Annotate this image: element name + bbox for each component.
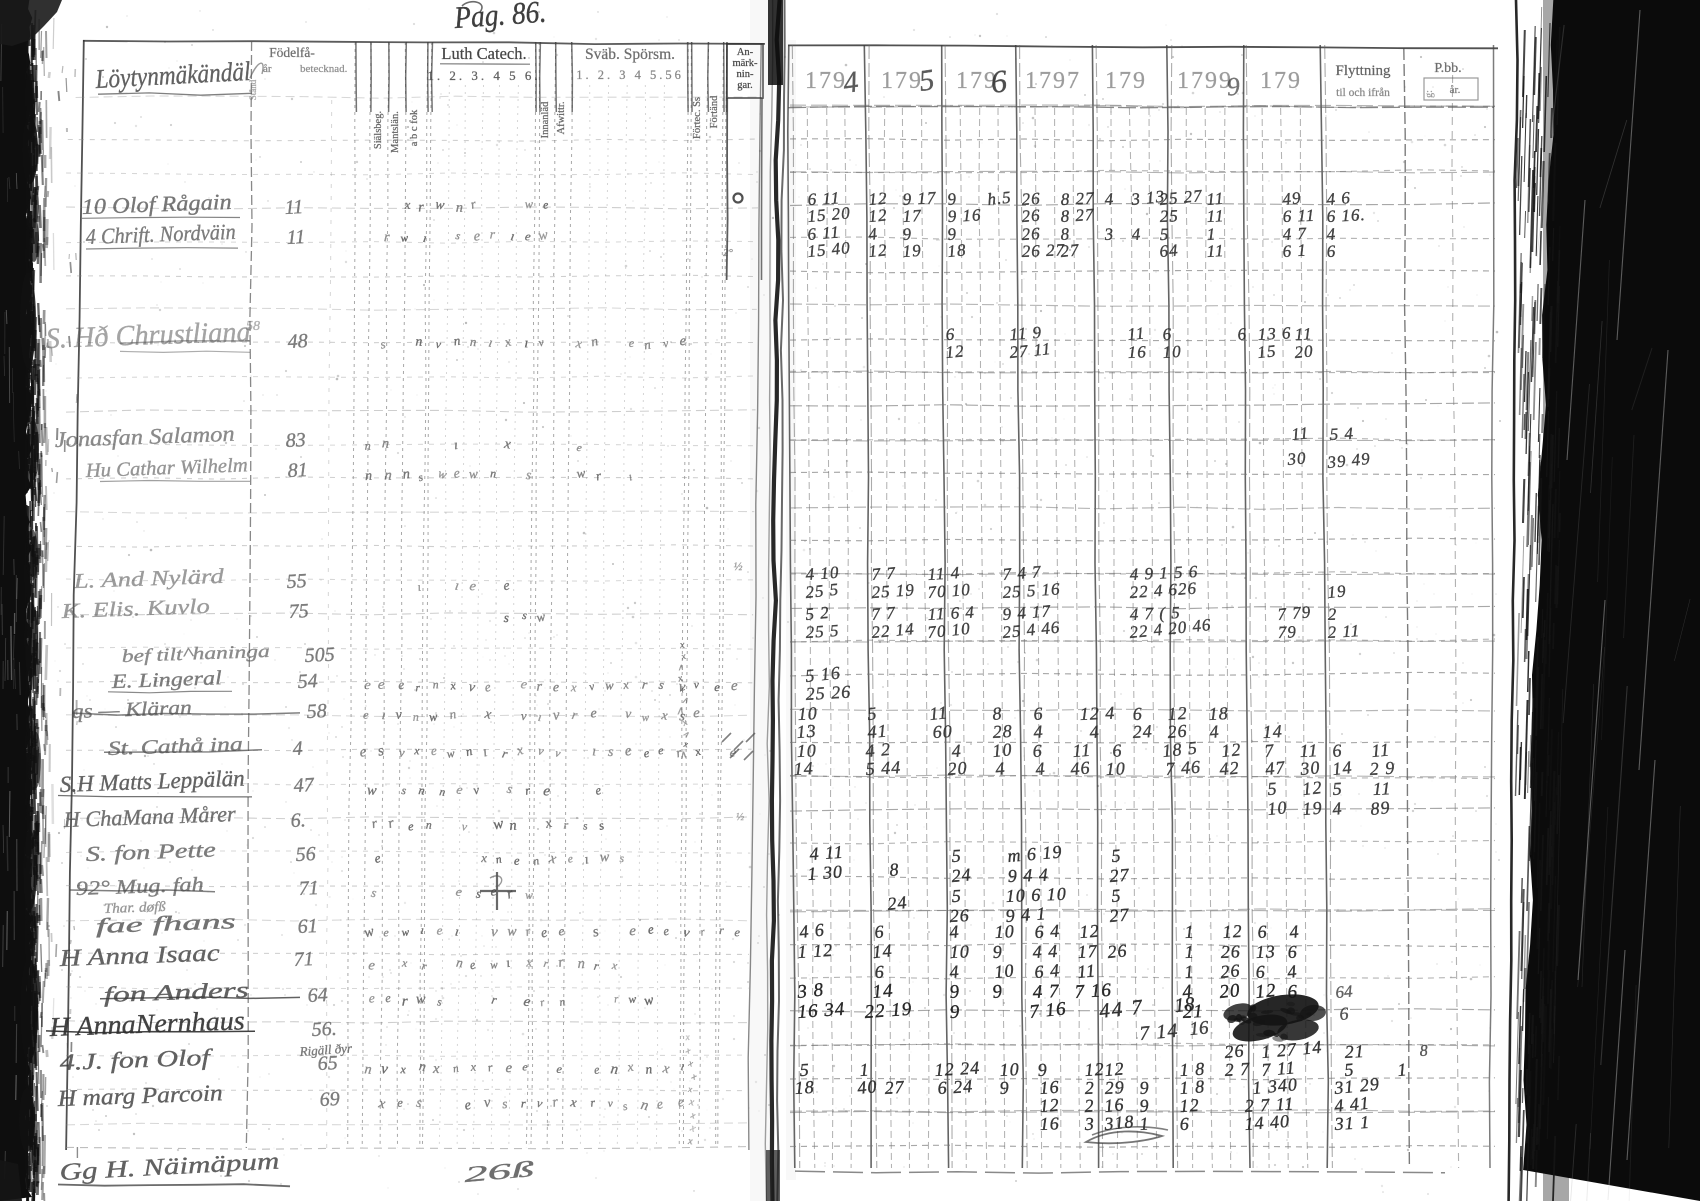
svg-text:6: 6 — [1287, 942, 1298, 962]
svg-text:6: 6 — [945, 325, 955, 344]
svg-text:9: 9 — [999, 1077, 1010, 1098]
svg-text:2 11: 2 11 — [1327, 621, 1361, 642]
svg-text:w: w — [507, 923, 517, 938]
svg-text:16: 16 — [1039, 1113, 1060, 1134]
svg-text:14 40: 14 40 — [1244, 1111, 1291, 1134]
svg-text:55: 55 — [286, 570, 307, 593]
svg-text:89: 89 — [1369, 797, 1391, 819]
svg-text:16: 16 — [1189, 1017, 1210, 1040]
svg-text:½: ½ — [736, 811, 744, 823]
svg-text:∧: ∧ — [675, 705, 684, 718]
svg-text:P.bb.: P.bb. — [1434, 61, 1461, 76]
svg-text:r: r — [536, 679, 542, 695]
svg-text:9 4 4: 9 4 4 — [1007, 864, 1049, 886]
svg-text:64: 64 — [1335, 982, 1354, 1002]
svg-text:Innanläd: Innanläd — [540, 101, 551, 138]
svg-text:10: 10 — [1266, 797, 1288, 819]
svg-text:1 12: 1 12 — [797, 940, 834, 962]
svg-text:25 5: 25 5 — [805, 621, 840, 642]
svg-text:56.: 56. — [311, 1018, 337, 1041]
svg-text:n: n — [470, 335, 477, 349]
svg-text:4: 4 — [292, 737, 303, 759]
svg-text:70 10: 70 10 — [927, 580, 972, 602]
svg-text:4: 4 — [1089, 721, 1100, 742]
svg-text:12: 12 — [945, 341, 966, 362]
svg-text:12: 12 — [868, 240, 889, 261]
svg-text:fon Anders: fon Anders — [103, 977, 249, 1007]
svg-text:n: n — [509, 817, 517, 834]
svg-text:8 27: 8 27 — [1060, 205, 1095, 226]
svg-text:8: 8 — [1419, 1042, 1429, 1060]
svg-text:13: 13 — [796, 721, 817, 742]
svg-text:h.5: h.5 — [986, 188, 1012, 209]
svg-text:10: 10 — [999, 1059, 1020, 1080]
svg-text:16 34: 16 34 — [797, 999, 846, 1023]
svg-text:27: 27 — [1060, 240, 1081, 261]
svg-text:n: n — [384, 468, 392, 484]
svg-text:58: 58 — [246, 319, 260, 334]
svg-text:14: 14 — [872, 940, 894, 962]
svg-text:179: 179 — [1105, 68, 1147, 94]
svg-text:n: n — [490, 466, 497, 480]
svg-text:9: 9 — [992, 942, 1003, 962]
svg-text:5: 5 — [951, 886, 962, 906]
svg-text:e: e — [731, 678, 738, 694]
svg-text:1. 2. 3. 4 5 6.: 1. 2. 3. 4 5 6. — [427, 68, 540, 83]
svg-text:61: 61 — [297, 915, 318, 938]
svg-text:ı: ı — [592, 743, 596, 759]
svg-text:betecknad.: betecknad. — [300, 63, 348, 75]
svg-text:14: 14 — [1262, 721, 1283, 742]
svg-text:5: 5 — [1110, 885, 1122, 906]
svg-text:e: e — [680, 333, 687, 349]
svg-text:11: 11 — [1127, 323, 1146, 344]
svg-text:6: 6 — [1162, 324, 1173, 344]
svg-text:6 4: 6 4 — [1034, 921, 1061, 942]
svg-text:9 16: 9 16 — [947, 205, 982, 226]
svg-text:12: 12 — [868, 205, 889, 226]
svg-text:8: 8 — [888, 859, 900, 880]
svg-text:18: 18 — [1174, 993, 1196, 1017]
svg-text:3: 3 — [1083, 1114, 1095, 1134]
svg-text:58: 58 — [306, 700, 327, 723]
svg-text:7 14: 7 14 — [1139, 1020, 1180, 1045]
svg-text:17: 17 — [902, 206, 923, 226]
svg-text:19: 19 — [1327, 581, 1348, 602]
svg-text:5: 5 — [1111, 845, 1123, 866]
svg-text:år: år — [263, 63, 272, 75]
svg-text:13: 13 — [1255, 941, 1276, 962]
svg-text:5: 5 — [1332, 778, 1343, 799]
svg-text:15 40: 15 40 — [807, 238, 852, 261]
svg-text:26: 26 — [1220, 941, 1241, 962]
svg-text:2 7: 2 7 — [1224, 1059, 1251, 1080]
svg-text:11: 11 — [1206, 241, 1225, 261]
svg-text:4: 4 — [995, 758, 1007, 779]
svg-text:Förtec. Ss: Förtec. Ss — [692, 97, 703, 139]
svg-text:w: w — [469, 466, 478, 481]
svg-text:e: e — [590, 705, 596, 720]
svg-text:Afwittr.: Afwittr. — [556, 102, 567, 135]
svg-text:n: n — [415, 334, 423, 349]
svg-text:9: 9 — [991, 981, 1003, 1003]
svg-text:Förtänd: Förtänd — [709, 95, 720, 128]
svg-text:64: 64 — [307, 984, 328, 1007]
svg-text:30: 30 — [1298, 757, 1321, 779]
svg-text:e: e — [628, 336, 634, 350]
svg-text:18: 18 — [794, 1077, 815, 1098]
svg-text:e: e — [514, 854, 520, 868]
svg-text:9: 9 — [1226, 72, 1241, 102]
svg-text:10 Olof Rågain: 10 Olof Rågain — [81, 189, 232, 219]
svg-text:1797: 1797 — [1025, 68, 1081, 94]
svg-text:1. 2. 3 4 5.56: 1. 2. 3 4 5.56 — [576, 68, 684, 82]
svg-text:11: 11 — [286, 226, 306, 249]
svg-text:ı: ı — [524, 335, 529, 351]
svg-text:9: 9 — [949, 1002, 960, 1023]
svg-text:4: 4 — [1289, 921, 1301, 942]
svg-text:6: 6 — [1255, 962, 1266, 982]
svg-text:1 30: 1 30 — [807, 861, 844, 884]
svg-text:S. fon Pette: S. fon Pette — [85, 837, 216, 866]
svg-text:1: 1 — [1139, 1113, 1150, 1134]
svg-text:n: n — [578, 956, 585, 972]
svg-text:w: w — [525, 890, 533, 902]
svg-text:6: 6 — [1257, 921, 1268, 942]
svg-text:69: 69 — [319, 1088, 340, 1111]
svg-text:22 14: 22 14 — [871, 619, 916, 642]
svg-text:E. Lingeral: E. Lingeral — [110, 667, 222, 693]
svg-text:e: e — [629, 923, 637, 939]
svg-text:27 11: 27 11 — [1009, 339, 1053, 362]
svg-text:6: 6 — [874, 921, 885, 942]
svg-text:6: 6 — [1326, 242, 1336, 261]
svg-text:40: 40 — [856, 1076, 878, 1098]
svg-text:15: 15 — [1257, 341, 1278, 362]
svg-text:25 19: 25 19 — [871, 580, 915, 602]
svg-text:81: 81 — [287, 459, 308, 482]
svg-text:til och ifrån: til och ifrån — [1336, 86, 1390, 99]
svg-text:n: n — [456, 200, 464, 216]
svg-text:12: 12 — [1179, 1095, 1200, 1116]
svg-text:1: 1 — [1184, 961, 1196, 982]
svg-text:14: 14 — [793, 758, 814, 779]
svg-text:1: 1 — [1184, 942, 1195, 962]
svg-text:e: e — [558, 924, 564, 938]
svg-text:½: ½ — [734, 559, 743, 573]
svg-text:6 4: 6 4 — [1034, 960, 1061, 982]
svg-text:4: 4 — [949, 961, 960, 982]
svg-text:v: v — [625, 706, 632, 721]
svg-text:e: e — [553, 679, 560, 694]
svg-text:w: w — [605, 678, 614, 692]
svg-text:2: 2 — [1327, 605, 1337, 624]
svg-text:27: 27 — [1109, 904, 1131, 926]
svg-text:10: 10 — [949, 941, 970, 962]
svg-text:2 9: 2 9 — [1369, 758, 1396, 779]
svg-text:Siälsbeg.: Siälsbeg. — [373, 111, 384, 149]
svg-text:n: n — [365, 439, 371, 453]
svg-text:qs — Kläran: qs — Kläran — [71, 697, 192, 723]
svg-text:60: 60 — [932, 721, 953, 742]
svg-text:4 6: 4 6 — [798, 919, 825, 942]
svg-text:Flyttning: Flyttning — [1335, 63, 1391, 79]
svg-text:505: 505 — [304, 643, 335, 667]
svg-text:e: e — [436, 923, 443, 937]
svg-text:31 1: 31 1 — [1333, 1112, 1371, 1134]
svg-text:n: n — [402, 466, 410, 482]
svg-text:a b c fok: a b c fok — [409, 109, 420, 146]
svg-text:11: 11 — [284, 196, 304, 219]
svg-text:6 16.: 6 16. — [1326, 205, 1366, 226]
svg-text:x: x — [432, 1061, 440, 1077]
svg-text:20: 20 — [1294, 341, 1315, 362]
svg-text:10: 10 — [993, 960, 1015, 982]
svg-text:10 6 10: 10 6 10 — [1005, 884, 1067, 906]
svg-text:4: 4 — [1131, 225, 1141, 244]
svg-text:4: 4 — [1209, 721, 1221, 742]
svg-text:4: 4 — [1033, 721, 1045, 742]
svg-text:12: 12 — [1079, 921, 1100, 942]
svg-text:10: 10 — [1105, 758, 1126, 779]
svg-text:25: 25 — [1159, 206, 1179, 226]
svg-text:g:: g: — [1424, 90, 1435, 98]
svg-text:7 16: 7 16 — [1028, 998, 1067, 1023]
svg-text:179: 179 — [1260, 68, 1302, 94]
svg-text:14: 14 — [1331, 757, 1353, 779]
svg-text:5 44: 5 44 — [865, 757, 902, 779]
svg-text:St. Cathå ina: St. Cathå ina — [107, 733, 243, 760]
svg-text:e: e — [383, 926, 389, 939]
svg-text:24: 24 — [1132, 721, 1153, 742]
svg-text:6 24: 6 24 — [937, 1076, 974, 1098]
svg-text:1: 1 — [1184, 921, 1195, 942]
svg-text:25 27: 25 27 — [1159, 186, 1204, 209]
svg-text:6 1: 6 1 — [1282, 240, 1307, 261]
svg-text:5 4: 5 4 — [1329, 424, 1354, 444]
svg-text:12: 12 — [1084, 1059, 1105, 1080]
svg-text:10: 10 — [994, 921, 1015, 942]
svg-text:n: n — [413, 710, 419, 724]
svg-text:11: 11 — [1206, 206, 1225, 226]
svg-text:48: 48 — [287, 330, 308, 353]
svg-text:75: 75 — [288, 600, 309, 623]
svg-text:v: v — [608, 1098, 614, 1110]
svg-text:x: x — [413, 745, 420, 757]
svg-text:25 26: 25 26 — [805, 681, 852, 704]
svg-text:w: w — [366, 782, 377, 799]
svg-text:x: x — [399, 1063, 406, 1076]
svg-text:n: n — [365, 469, 373, 484]
svg-text:24: 24 — [951, 864, 973, 886]
svg-text:19: 19 — [1302, 797, 1324, 819]
svg-text:6: 6 — [1179, 1114, 1190, 1134]
svg-text:47: 47 — [1264, 757, 1286, 779]
svg-text:Födelfå-: Födelfå- — [269, 45, 315, 60]
svg-text:2°: 2° — [723, 247, 734, 259]
svg-text:5: 5 — [1267, 778, 1279, 799]
svg-text:Luth Catech.: Luth Catech. — [441, 44, 526, 63]
svg-text:20: 20 — [1218, 980, 1241, 1003]
svg-text:s: s — [619, 853, 624, 865]
svg-text:4: 4 — [1104, 189, 1115, 209]
svg-text:47: 47 — [293, 774, 315, 797]
svg-text:12: 12 — [1222, 921, 1243, 942]
svg-text:56: 56 — [295, 843, 316, 866]
svg-text:w: w — [416, 991, 426, 1007]
svg-text:e: e — [543, 199, 548, 211]
svg-text:11: 11 — [1291, 423, 1311, 444]
svg-text:18: 18 — [947, 240, 968, 261]
svg-text:26: 26 — [1107, 940, 1129, 962]
svg-text:4: 4 — [1035, 758, 1046, 779]
svg-text:n: n — [381, 435, 389, 451]
svg-text:Mantslän.: Mantslän. — [390, 111, 401, 153]
svg-text:22 19: 22 19 — [864, 999, 913, 1023]
svg-text:x: x — [401, 957, 408, 970]
svg-text:11: 11 — [1076, 960, 1097, 982]
svg-text:r: r — [402, 993, 408, 1009]
svg-text:179: 179 — [881, 68, 923, 94]
svg-text:11: 11 — [1372, 778, 1392, 799]
svg-text:44 7: 44 7 — [1098, 994, 1145, 1023]
svg-text:4 4: 4 4 — [1032, 941, 1058, 962]
svg-text:r: r — [418, 199, 425, 215]
svg-text:24: 24 — [886, 892, 908, 914]
svg-text:79: 79 — [1277, 622, 1297, 642]
svg-text:6 11: 6 11 — [1282, 206, 1315, 226]
svg-text:fae fhans: fae fhans — [95, 909, 236, 938]
svg-text:71: 71 — [293, 948, 314, 971]
svg-text:64: 64 — [1159, 241, 1179, 261]
svg-text:w: w — [641, 712, 650, 724]
svg-text:27: 27 — [884, 1077, 905, 1098]
svg-text:46: 46 — [1070, 757, 1092, 779]
svg-text:4: 4 — [1286, 961, 1298, 982]
svg-text:n: n — [433, 678, 439, 691]
svg-text:83: 83 — [285, 429, 306, 452]
svg-text:e: e — [693, 705, 700, 721]
svg-text:4: 4 — [949, 921, 961, 942]
svg-text:54: 54 — [297, 670, 318, 693]
svg-text:v: v — [521, 709, 527, 723]
svg-text:r: r — [719, 924, 724, 937]
svg-text:x: x — [404, 198, 411, 212]
svg-text:4 Chrift. Nordväin: 4 Chrift. Nordväin — [85, 219, 236, 249]
svg-text:6.: 6. — [290, 809, 306, 832]
svg-text:r: r — [521, 1096, 526, 1110]
svg-text:1: 1 — [1397, 1059, 1409, 1080]
svg-text:16: 16 — [1127, 342, 1147, 362]
svg-text:s: s — [503, 610, 509, 625]
svg-text:x: x — [525, 954, 532, 969]
svg-text:19: 19 — [902, 241, 922, 261]
svg-text:10: 10 — [1162, 342, 1182, 362]
svg-text:w: w — [525, 197, 534, 211]
svg-text:6: 6 — [1237, 324, 1248, 344]
svg-text:r: r — [415, 682, 420, 694]
svg-text:7 46: 7 46 — [1165, 757, 1202, 779]
svg-text:år.: år. — [1450, 84, 1461, 96]
svg-text:17: 17 — [1077, 941, 1098, 962]
svg-text:71: 71 — [298, 877, 319, 900]
svg-text:6: 6 — [1339, 1003, 1350, 1024]
svg-text:25 5 16: 25 5 16 — [1002, 579, 1061, 602]
svg-text:26: 26 — [1219, 960, 1241, 982]
svg-text:w: w — [599, 849, 610, 865]
svg-text:42: 42 — [1219, 758, 1240, 779]
svg-text:e: e — [369, 990, 375, 1005]
svg-text:27: 27 — [1109, 865, 1130, 886]
svg-text:4: 4 — [1331, 798, 1343, 819]
svg-text:x: x — [480, 851, 487, 865]
svg-text:n: n — [426, 818, 433, 831]
svg-text:9: 9 — [949, 981, 961, 1003]
svg-text:25 5: 25 5 — [804, 580, 839, 602]
svg-text:3: 3 — [1103, 224, 1115, 244]
svg-text:6: 6 — [874, 962, 885, 982]
svg-text:12: 12 — [1301, 777, 1323, 799]
svg-text:Sväb. Spörsm.: Sväb. Spörsm. — [585, 46, 675, 63]
svg-text:92° Mug. fah: 92° Mug. fah — [75, 874, 204, 900]
svg-text:30: 30 — [1286, 448, 1308, 469]
svg-text:5: 5 — [951, 845, 962, 866]
svg-text:7 79: 7 79 — [1277, 602, 1312, 624]
svg-text:20: 20 — [947, 758, 968, 779]
